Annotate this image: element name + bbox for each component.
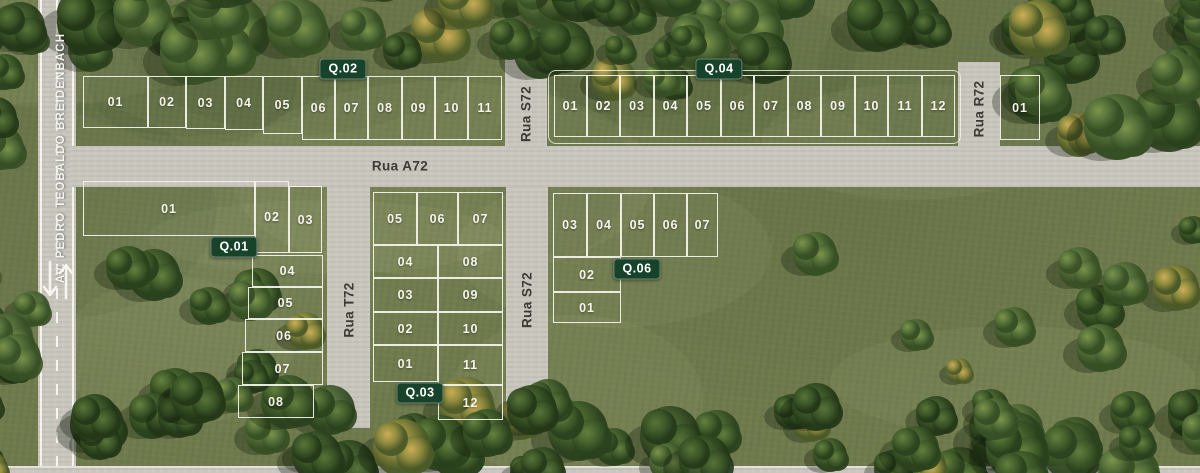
lot-number: 03 <box>398 288 414 302</box>
lot-Q.04-07[interactable]: 07 <box>754 75 788 137</box>
street-label-rua-t72: Rua T72 <box>342 282 357 337</box>
lot-number: 10 <box>463 322 479 336</box>
lot-number: 11 <box>897 99 912 113</box>
lot-number: 06 <box>311 101 327 115</box>
lane-direction-arrows <box>40 256 76 304</box>
lot-Q.03-02[interactable]: 02 <box>373 312 438 345</box>
lot-Q.04-06[interactable]: 06 <box>721 75 754 137</box>
lot-number: 11 <box>477 101 492 115</box>
lot-number: 10 <box>864 99 880 113</box>
street-label-rua-s72-top: Rua S72 <box>519 86 534 142</box>
block-badge-Q.04: Q.04 <box>695 59 742 80</box>
lot-Q.04-09[interactable]: 09 <box>821 75 855 137</box>
lot-number: 09 <box>463 288 479 302</box>
lot-number: 08 <box>463 255 479 269</box>
arrow-down-icon <box>44 262 56 295</box>
lot-Q.02-09[interactable]: 09 <box>402 76 435 140</box>
lot-number: 04 <box>596 218 612 232</box>
lot-Q.01-06[interactable]: 06 <box>245 319 323 352</box>
block-badge-Q.02: Q.02 <box>319 59 366 80</box>
site-plan: AV. PEDRO TEOBALDO BREIDENBACHRua A72Rua… <box>0 0 1200 473</box>
lot-Q.06-06[interactable]: 06 <box>654 193 687 257</box>
lot-number: 08 <box>268 395 284 409</box>
lot-Q.01-03[interactable]: 03 <box>289 186 322 253</box>
lot-number: 06 <box>663 218 679 232</box>
lot-Q.04-11[interactable]: 11 <box>888 75 922 137</box>
lot-number: 03 <box>298 213 314 227</box>
block-badge-Q.06: Q.06 <box>613 259 660 280</box>
lot-Q.02-03[interactable]: 03 <box>186 76 225 129</box>
lot-number: 09 <box>830 99 846 113</box>
lot-number: 05 <box>278 296 294 310</box>
lot-Q.06-07[interactable]: 07 <box>687 193 718 257</box>
lot-number: 02 <box>264 210 280 224</box>
lot-Q.02-02[interactable]: 02 <box>148 76 186 128</box>
lot-Q.01-05[interactable]: 05 <box>248 287 323 319</box>
lot-Q.03-05[interactable]: 05 <box>373 192 417 245</box>
lot-Q.03-06[interactable]: 06 <box>417 192 458 245</box>
street-label-avenue: AV. PEDRO TEOBALDO BREIDENBACH <box>55 33 67 283</box>
lot-Q.04-03[interactable]: 03 <box>620 75 654 137</box>
lot-number: 02 <box>398 322 414 336</box>
lot-number: 07 <box>275 362 291 376</box>
lot-number: 08 <box>797 99 813 113</box>
lot-Q.04-04[interactable]: 04 <box>654 75 687 137</box>
lot-Q.06-04[interactable]: 04 <box>587 193 621 257</box>
lot-number: 01 <box>161 202 177 216</box>
lot-number: 01 <box>563 99 579 113</box>
lot-Q.04-05[interactable]: 05 <box>687 75 721 137</box>
lot-Q.01-07[interactable]: 07 <box>242 352 323 385</box>
lot-number: 03 <box>198 96 214 110</box>
lot-number: 04 <box>398 255 414 269</box>
lot-Q.03-01[interactable]: 01 <box>373 345 438 382</box>
lot-number: 02 <box>596 99 612 113</box>
lot-number: 01 <box>108 95 124 109</box>
street-label-rua-s72-bottom: Rua S72 <box>520 272 535 328</box>
lot-number: 06 <box>430 212 446 226</box>
street-label-rua-a72: Rua A72 <box>372 159 428 174</box>
lot-Q.03-12[interactable]: 12 <box>438 385 503 420</box>
lot-Q.03-03[interactable]: 03 <box>373 278 438 312</box>
lot-number: 09 <box>411 101 427 115</box>
plan-overlay-layer: AV. PEDRO TEOBALDO BREIDENBACHRua A72Rua… <box>0 0 1200 473</box>
lot-number: 06 <box>276 329 292 343</box>
lot-Q.02-08[interactable]: 08 <box>368 76 402 140</box>
lot-number: 01 <box>1012 101 1028 115</box>
lot-Q.06-03[interactable]: 03 <box>553 193 587 257</box>
lot-number: 07 <box>695 218 711 232</box>
lot-number: 04 <box>663 99 679 113</box>
lot-number: 12 <box>463 396 479 410</box>
block-badge-Q.03: Q.03 <box>396 383 443 404</box>
lot-number: 01 <box>398 357 414 371</box>
lot-number: 01 <box>579 301 595 315</box>
lot-Q.04-12[interactable]: 12 <box>922 75 955 137</box>
lot-number: 05 <box>387 212 403 226</box>
lot-Q.01-02[interactable]: 02 <box>255 181 289 253</box>
street-label-rua-r72: Rua R72 <box>972 81 987 138</box>
lot-Q.01-04[interactable]: 04 <box>252 255 323 287</box>
lot-Q.02-06[interactable]: 06 <box>302 76 335 140</box>
lot-number: 06 <box>730 99 746 113</box>
lot-number: 07 <box>344 101 360 115</box>
lot-number: 03 <box>629 99 645 113</box>
lot-number: 05 <box>696 99 712 113</box>
lot-Q.02-05[interactable]: 05 <box>263 76 302 134</box>
lot-Q.06-01[interactable]: 01 <box>553 292 621 323</box>
lot-Q.06-05[interactable]: 05 <box>621 193 654 257</box>
lot-Q.03-10[interactable]: 10 <box>438 312 503 345</box>
lot-number: 11 <box>463 358 478 372</box>
lot-number: 02 <box>579 268 595 282</box>
lot-Q.02-04[interactable]: 04 <box>225 76 263 130</box>
lot-block-right-of-r72-01[interactable]: 01 <box>1000 75 1040 140</box>
arrow-up-icon <box>60 265 72 298</box>
lot-number: 08 <box>377 101 393 115</box>
lot-number: 04 <box>236 96 252 110</box>
lot-Q.04-10[interactable]: 10 <box>855 75 888 137</box>
lot-Q.02-10[interactable]: 10 <box>435 76 468 140</box>
lot-number: 02 <box>159 95 175 109</box>
lot-Q.04-08[interactable]: 08 <box>788 75 821 137</box>
lot-Q.01-08[interactable]: 08 <box>238 385 314 418</box>
lot-number: 04 <box>280 264 296 278</box>
lot-Q.03-11[interactable]: 11 <box>438 345 503 385</box>
lot-Q.02-11[interactable]: 11 <box>468 76 502 140</box>
lot-Q.03-07[interactable]: 07 <box>458 192 503 245</box>
lot-Q.02-01[interactable]: 01 <box>83 76 148 128</box>
lot-number: 12 <box>931 99 947 113</box>
lot-Q.02-07[interactable]: 07 <box>335 76 368 140</box>
lot-number: 07 <box>763 99 779 113</box>
lot-number: 10 <box>444 101 460 115</box>
lot-Q.03-09[interactable]: 09 <box>438 278 503 312</box>
lot-Q.03-08[interactable]: 08 <box>438 245 503 278</box>
lot-Q.04-02[interactable]: 02 <box>587 75 620 137</box>
lot-Q.03-04[interactable]: 04 <box>373 245 438 278</box>
lot-number: 05 <box>275 98 291 112</box>
lot-number: 03 <box>562 218 578 232</box>
lot-Q.06-02[interactable]: 02 <box>553 257 621 292</box>
lot-Q.04-01[interactable]: 01 <box>554 75 587 137</box>
lot-number: 07 <box>473 212 489 226</box>
lot-number: 05 <box>630 218 646 232</box>
block-badge-Q.01: Q.01 <box>210 237 257 258</box>
lot-Q.01-01[interactable]: 01 <box>83 181 255 236</box>
